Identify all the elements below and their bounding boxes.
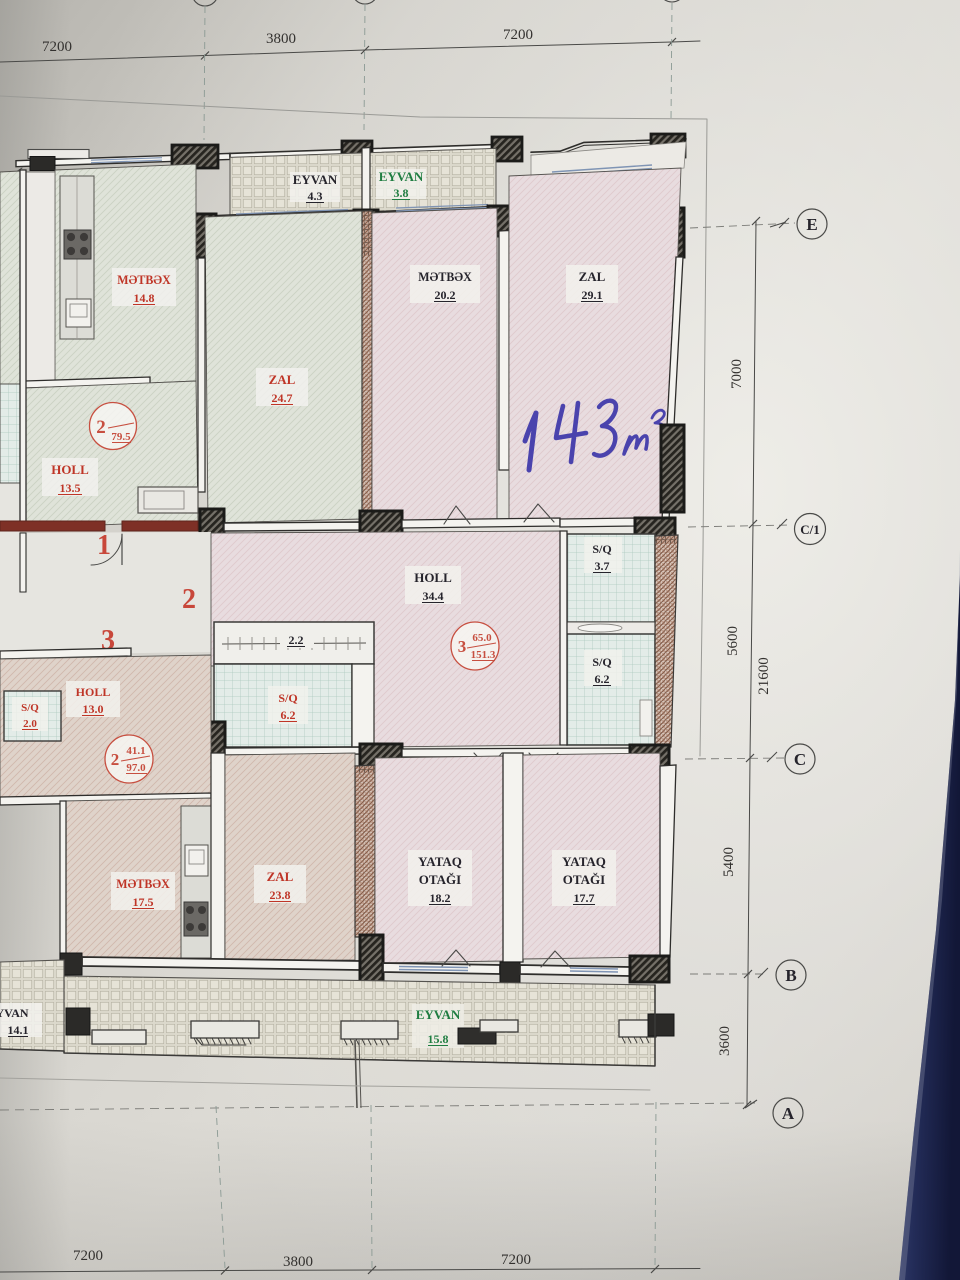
svg-text:6.2: 6.2 [595,672,610,686]
svg-text:EYVAN: EYVAN [0,1006,29,1020]
svg-text:7200: 7200 [42,39,72,55]
svg-text:5600: 5600 [725,626,741,656]
svg-text:A: A [782,1104,795,1123]
svg-text:41.1: 41.1 [126,745,145,757]
svg-text:4.3: 4.3 [308,189,323,203]
svg-text:2: 2 [96,417,106,438]
svg-text:ZAL: ZAL [579,269,606,284]
svg-text:3: 3 [458,637,467,656]
svg-text:17.5: 17.5 [133,895,154,909]
svg-text:S/Q: S/Q [592,542,611,556]
svg-text:YATAQ: YATAQ [418,854,462,869]
svg-text:S/Q: S/Q [592,655,611,669]
svg-text:ZAL: ZAL [267,869,294,884]
svg-text:3800: 3800 [266,31,296,47]
svg-text:HOLL: HOLL [414,570,452,585]
svg-text:E: E [806,215,817,234]
svg-text:EYVAN: EYVAN [379,169,424,184]
svg-text:7200: 7200 [73,1248,103,1264]
svg-text:18.2: 18.2 [430,891,451,905]
svg-text:14.1: 14.1 [8,1023,29,1037]
svg-text:20.2: 20.2 [435,288,456,302]
svg-text:EYVAN: EYVAN [416,1007,461,1022]
svg-text:2: 2 [111,750,120,769]
svg-text:97.0: 97.0 [126,762,146,774]
svg-text:MƏTBƏX: MƏTBƏX [418,270,472,285]
svg-text:B: B [785,966,796,985]
svg-text:17.7: 17.7 [574,891,595,905]
svg-text:6.2: 6.2 [281,708,296,722]
svg-text:14.8: 14.8 [134,291,155,305]
svg-text:15.8: 15.8 [428,1032,449,1046]
svg-text:OTAĞI: OTAĞI [419,872,461,887]
svg-text:2.0: 2.0 [23,718,37,730]
svg-text:21600: 21600 [756,657,772,695]
svg-text:79.5: 79.5 [111,431,131,443]
svg-text:3.8: 3.8 [394,186,409,200]
svg-text:23.8: 23.8 [270,888,291,902]
svg-text:HOLL: HOLL [76,685,111,699]
svg-text:29.1: 29.1 [582,288,603,302]
svg-text:S/Q: S/Q [278,691,297,705]
svg-text:13.5: 13.5 [60,481,81,495]
svg-text:3.7: 3.7 [595,559,610,573]
svg-text:YATAQ: YATAQ [562,854,606,869]
svg-text:3600: 3600 [717,1026,733,1056]
svg-text:13.0: 13.0 [83,702,104,716]
svg-text:MƏTBƏX: MƏTBƏX [116,877,170,892]
svg-text:1: 1 [97,530,111,561]
svg-text:MƏTBƏX: MƏTBƏX [117,273,171,288]
svg-text:C/1: C/1 [800,522,820,537]
svg-text:34.4: 34.4 [423,589,444,603]
svg-text:2: 2 [182,584,196,615]
svg-text:7000: 7000 [729,359,745,389]
svg-text:EYVAN: EYVAN [293,172,338,187]
svg-text:7200: 7200 [503,27,533,43]
svg-text:3800: 3800 [283,1254,313,1270]
svg-text:151.3: 151.3 [471,649,496,661]
svg-text:S/Q: S/Q [21,702,39,714]
svg-text:ZAL: ZAL [269,372,296,387]
svg-text:2.2: 2.2 [289,633,304,647]
svg-text:C: C [794,750,806,769]
svg-text:5400: 5400 [721,847,737,877]
svg-text:7200: 7200 [501,1252,531,1268]
svg-text:HOLL: HOLL [51,462,89,477]
svg-text:65.0: 65.0 [472,632,492,644]
svg-text:OTAĞI: OTAĞI [563,872,605,887]
svg-text:24.7: 24.7 [272,391,293,405]
